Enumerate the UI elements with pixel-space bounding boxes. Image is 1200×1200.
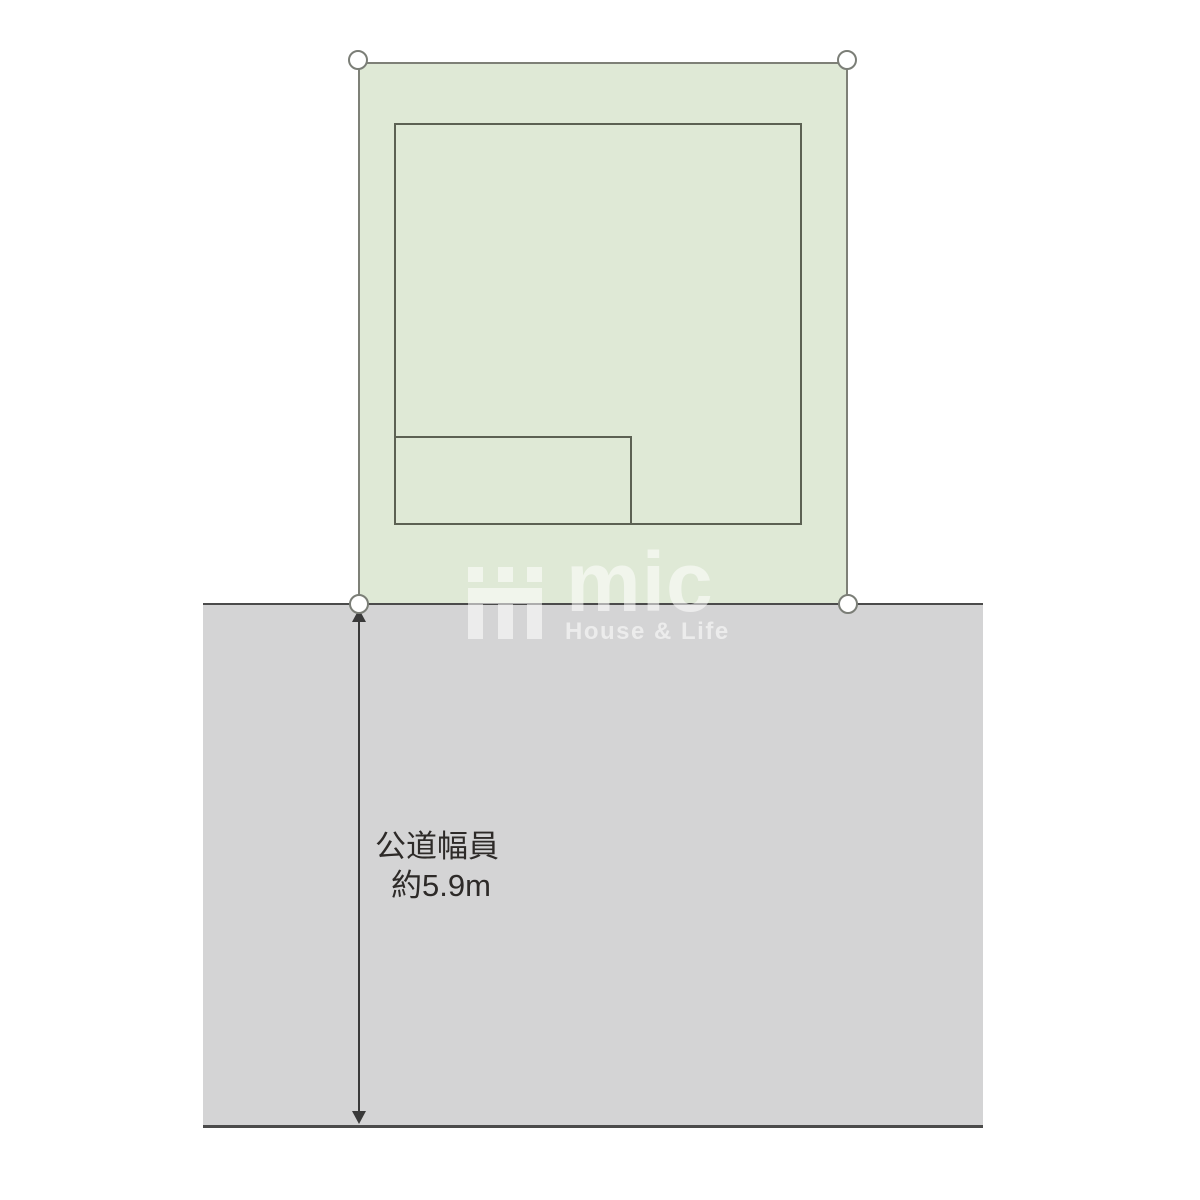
building-partition-horizontal bbox=[396, 436, 632, 438]
logo-band bbox=[468, 588, 542, 604]
mic-triple-bar-icon bbox=[468, 567, 542, 639]
road-width-label-line1: 公道幅員 bbox=[375, 827, 499, 866]
road-area bbox=[203, 603, 983, 1128]
logo-bar bbox=[498, 604, 513, 639]
logo-dot bbox=[498, 567, 513, 582]
logo-bar bbox=[527, 604, 542, 639]
road-width-arrow bbox=[358, 617, 360, 1119]
brand-tagline: House & Life bbox=[565, 620, 730, 644]
brand-name: mic bbox=[566, 540, 714, 624]
arrowhead-bottom bbox=[352, 1111, 366, 1124]
boundary-corner-marker bbox=[349, 594, 369, 614]
building-outline bbox=[394, 123, 802, 525]
logo-dot bbox=[468, 567, 483, 582]
boundary-corner-marker bbox=[348, 50, 368, 70]
logo-dot bbox=[527, 567, 542, 582]
building-partition-vertical bbox=[630, 436, 632, 525]
boundary-corner-marker bbox=[838, 594, 858, 614]
road-width-label: 公道幅員 約5.9m bbox=[375, 827, 499, 905]
boundary-corner-marker bbox=[837, 50, 857, 70]
logo-bar bbox=[468, 604, 483, 639]
road-width-label-line2: 約5.9m bbox=[375, 866, 499, 905]
site-plan-diagram: 公道幅員 約5.9m mic House & Life bbox=[0, 0, 1200, 1200]
